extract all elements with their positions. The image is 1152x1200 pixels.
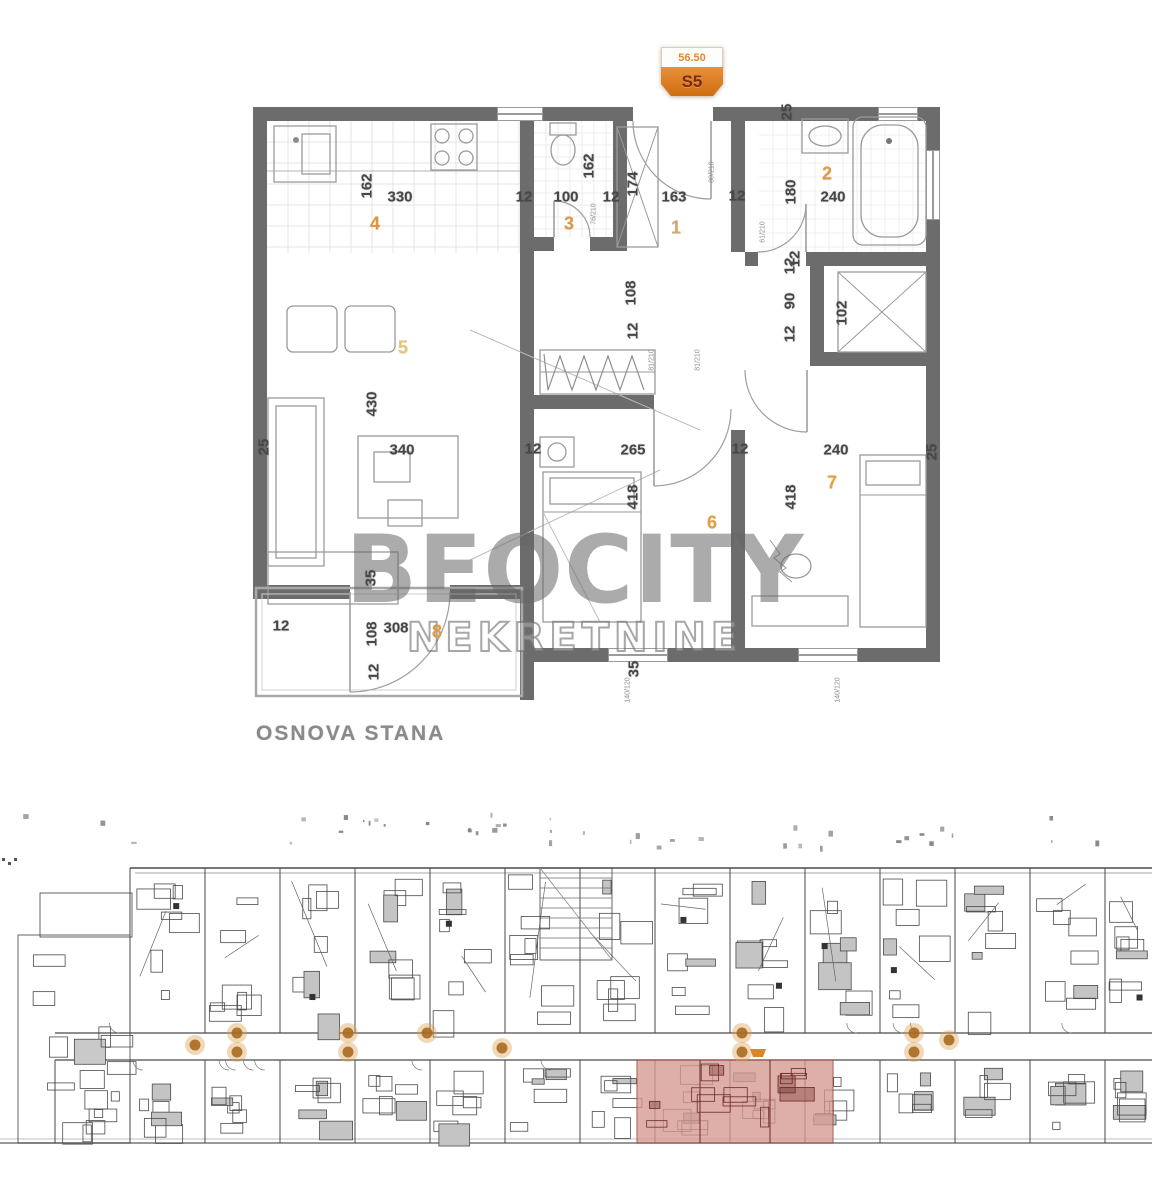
- corridor-marker-glow: [939, 1030, 959, 1050]
- building-room: [101, 1035, 133, 1047]
- dimension-tick: [384, 824, 386, 827]
- building-room: [63, 1123, 93, 1144]
- door-swing-arc: [133, 1060, 143, 1070]
- building-room: [1115, 1082, 1126, 1097]
- corridor-marker-dot: [737, 1028, 748, 1039]
- door-swing-arc: [255, 1060, 265, 1070]
- highlight-room: [778, 1076, 795, 1093]
- building-room: [318, 1083, 340, 1102]
- highlight-room: [649, 1101, 660, 1108]
- unit-id-label: S5: [661, 67, 723, 96]
- building-room: [540, 868, 612, 960]
- unit-area-label: 56.50: [661, 47, 723, 68]
- screenshot-root: 56.50 S5 1623301210012162174163122518024…: [0, 0, 1152, 1200]
- building-room: [840, 938, 856, 951]
- building-room: [534, 1089, 567, 1102]
- dimension-label: 163: [661, 189, 686, 206]
- building-room: [33, 992, 55, 1006]
- dimension-tick: [828, 831, 833, 837]
- building-room: [1054, 910, 1071, 924]
- door-swing-arc: [243, 1060, 253, 1070]
- building-room: [605, 1081, 617, 1091]
- building-room: [316, 891, 338, 908]
- dimension-tick: [952, 833, 954, 837]
- building-room: [304, 971, 320, 997]
- highlight-room: [780, 1087, 814, 1101]
- building-room: [608, 989, 617, 1011]
- highlight-room: [723, 1097, 756, 1106]
- building-room: [1055, 1083, 1085, 1105]
- building-room: [883, 879, 902, 905]
- building-room: [1069, 918, 1097, 936]
- building-line: [540, 868, 612, 960]
- corridor-marker-glow: [732, 1042, 752, 1062]
- door-swing-arc: [219, 1060, 229, 1070]
- building-room: [161, 912, 181, 919]
- building-room: [446, 889, 461, 915]
- wardrobe-hangers: [544, 354, 644, 390]
- building-room: [453, 1097, 477, 1115]
- window-glass-line: [799, 654, 857, 656]
- building-room: [94, 1110, 102, 1118]
- armchair-icon: [287, 306, 337, 352]
- door-size-annotation: 81/210: [695, 349, 702, 370]
- building-room: [663, 1109, 691, 1131]
- window-glass-line: [932, 151, 934, 219]
- room-number: 5: [398, 338, 408, 359]
- corridor-marker-dot: [232, 1028, 243, 1039]
- building-room: [463, 1097, 481, 1107]
- sight-line: [470, 330, 700, 430]
- shaft-fill: [1137, 994, 1143, 1000]
- building-room: [601, 1076, 631, 1093]
- building-room: [965, 1100, 991, 1109]
- wall: [534, 395, 654, 409]
- building-line: [368, 904, 396, 971]
- toilet-tank-icon: [550, 123, 576, 135]
- dimension-label: 25: [924, 444, 941, 461]
- building-room: [363, 1099, 395, 1113]
- building-room: [756, 961, 787, 968]
- door-swing-arc: [893, 1023, 903, 1033]
- bed: [860, 455, 926, 627]
- building-room: [823, 943, 847, 966]
- corridor-marker-dot: [343, 1047, 354, 1058]
- building-room: [1067, 998, 1096, 1009]
- dimension-tick: [1049, 816, 1053, 821]
- building-line: [899, 947, 935, 980]
- dimension-label: 418: [783, 484, 800, 509]
- building-room: [532, 1079, 544, 1084]
- dimension-label: 12: [732, 441, 749, 458]
- building-room: [819, 963, 852, 990]
- corridor-marker-dot: [190, 1040, 201, 1051]
- kitchen-sink: [274, 126, 336, 182]
- building-room: [154, 884, 175, 898]
- terrace-parapet: [256, 588, 522, 696]
- plan-title: OSNOVA STANA: [256, 722, 445, 746]
- building-room: [433, 1011, 454, 1037]
- building-room: [238, 992, 247, 1010]
- window-glass-line: [609, 654, 667, 656]
- dimension-tick: [670, 839, 675, 842]
- dimension-label: 240: [820, 189, 845, 206]
- window-glass-line: [498, 113, 542, 115]
- building-room: [389, 960, 413, 978]
- building-room: [80, 1071, 104, 1089]
- wall: [253, 107, 267, 599]
- building-room: [1110, 902, 1133, 923]
- dimension-label: 12: [273, 618, 290, 635]
- building-line: [758, 918, 783, 971]
- building-room: [760, 940, 777, 947]
- highlight-room: [780, 1073, 792, 1083]
- door-size-annotation: 80/210: [709, 161, 716, 182]
- apartment-plan-fixtures: [0, 0, 1152, 790]
- dimension-label: 12: [787, 251, 804, 268]
- dimension-tick: [468, 829, 472, 832]
- building-room: [896, 909, 919, 925]
- building-line: [225, 935, 259, 957]
- building-room: [153, 1101, 169, 1115]
- building-room: [48, 1083, 75, 1090]
- building-room: [510, 935, 538, 959]
- door-swing-arc: [633, 121, 711, 199]
- corridor-marker-dot: [497, 1043, 508, 1054]
- building-room: [309, 885, 327, 911]
- wall: [810, 352, 926, 366]
- dimension-tick: [657, 846, 662, 850]
- building-room: [107, 1062, 136, 1075]
- sofa: [268, 552, 398, 604]
- building-room: [137, 889, 171, 909]
- door-swing-arc: [541, 1060, 551, 1070]
- building-room: [679, 898, 708, 923]
- door-size-annotation: 140/120: [835, 677, 842, 702]
- wall: [713, 107, 940, 121]
- stove-icon: [431, 124, 477, 170]
- building-room: [1110, 979, 1122, 1002]
- building-room: [613, 1078, 637, 1083]
- building-room: [370, 951, 396, 963]
- dimension-tick: [793, 825, 797, 830]
- room-number: 4: [370, 214, 380, 235]
- dimension-label: 25: [256, 439, 273, 456]
- building-room: [18, 935, 130, 1143]
- building-room: [1121, 939, 1144, 951]
- window: [497, 107, 543, 121]
- building-room: [1045, 982, 1065, 1002]
- dimension-label: 12: [625, 323, 642, 340]
- building-room: [814, 1115, 836, 1125]
- wall: [520, 585, 534, 700]
- window: [608, 648, 668, 662]
- window-glass-line: [879, 113, 917, 115]
- building-room: [968, 1012, 991, 1034]
- building-room: [443, 883, 461, 893]
- building-room: [221, 1123, 243, 1133]
- building-room: [210, 1003, 224, 1011]
- dimension-tick: [1051, 840, 1053, 843]
- door-swing-arc: [412, 1060, 422, 1070]
- shaft-fill: [309, 994, 315, 1000]
- building-room: [83, 1125, 91, 1142]
- building-room: [1113, 1105, 1146, 1119]
- building-room: [33, 955, 65, 966]
- corridor-marker-glow: [338, 1023, 358, 1043]
- building-room: [684, 1113, 699, 1123]
- building-room: [74, 1039, 105, 1064]
- building-room: [1121, 1071, 1143, 1092]
- building-room: [615, 1118, 631, 1139]
- building-room: [49, 1037, 67, 1057]
- dimension-tick: [2, 858, 5, 861]
- window: [798, 648, 858, 662]
- dimension-tick: [8, 862, 11, 865]
- building-room: [899, 1094, 913, 1113]
- building-room: [511, 955, 534, 965]
- corridor-marker-glow: [904, 1042, 924, 1062]
- dimension-tick: [468, 828, 470, 832]
- building-room: [1048, 1082, 1075, 1096]
- building-room: [152, 1084, 170, 1100]
- building-room: [1068, 1075, 1084, 1084]
- room-number: 6: [707, 513, 717, 534]
- building-room: [40, 893, 132, 937]
- building-room: [439, 1124, 470, 1146]
- building-line: [968, 903, 998, 941]
- building-line: [140, 911, 166, 976]
- building-room: [815, 1113, 831, 1124]
- building-room: [734, 1073, 756, 1082]
- building-room: [396, 1101, 426, 1120]
- dimension-label: 12: [782, 326, 799, 343]
- building-room: [152, 1112, 182, 1126]
- dimension-tick: [896, 840, 901, 843]
- door-size-annotation: 61/210: [760, 221, 767, 242]
- shaft-fill: [680, 917, 686, 923]
- building-room: [965, 894, 985, 911]
- building-room: [99, 1027, 111, 1047]
- wall: [810, 266, 824, 352]
- terrace-parapet: [262, 594, 516, 690]
- wall: [926, 107, 940, 662]
- wall: [520, 121, 534, 251]
- building-line: [661, 904, 706, 909]
- highlight-room: [761, 1107, 769, 1127]
- wall: [745, 252, 758, 266]
- chair: [781, 554, 811, 578]
- building-room: [1120, 1099, 1145, 1122]
- building-room: [173, 886, 182, 899]
- dimension-label: 100: [553, 189, 578, 206]
- building-room: [680, 1066, 712, 1085]
- armchair-icon: [345, 306, 395, 352]
- unit-badge: 56.50 S5: [659, 47, 723, 97]
- building-room: [604, 1004, 636, 1021]
- toilet-icon: [551, 135, 575, 165]
- dimension-label: 240: [823, 442, 848, 459]
- dimension-tick: [363, 820, 365, 822]
- building-room: [140, 1099, 149, 1111]
- room-number: 7: [827, 473, 837, 494]
- dimension-label: 90: [782, 293, 799, 310]
- building-room: [212, 1098, 233, 1105]
- building-room: [525, 939, 536, 954]
- sink-faucet-icon: [293, 137, 299, 143]
- building-room: [764, 1100, 775, 1123]
- shaft-cross: [617, 127, 658, 247]
- building-room: [449, 982, 463, 995]
- building-room: [846, 991, 872, 1015]
- dimension-tick: [940, 827, 944, 832]
- building-room: [161, 991, 169, 1000]
- dimension-label: 265: [620, 442, 645, 459]
- building-room: [237, 898, 258, 905]
- highlight-room: [692, 1088, 715, 1102]
- building-room: [209, 1006, 241, 1022]
- building-room: [230, 1096, 242, 1111]
- dimension-tick: [23, 814, 28, 819]
- closet-cross: [838, 272, 926, 352]
- building-room: [682, 1121, 708, 1135]
- building-room: [437, 1091, 464, 1105]
- room-number: 1: [671, 218, 681, 239]
- building-room: [380, 1096, 393, 1114]
- unit-entry-marker: [750, 1049, 766, 1057]
- dimension-tick: [550, 818, 552, 821]
- dimension-tick: [1095, 840, 1099, 846]
- building-room: [678, 1121, 708, 1130]
- building-room: [233, 1110, 247, 1123]
- dimension-label: 12: [782, 258, 799, 275]
- corridor-marker-dot: [909, 1047, 920, 1058]
- wall: [253, 107, 633, 121]
- building-room: [603, 880, 611, 894]
- dimension-label: 162: [581, 153, 598, 178]
- building-room: [753, 1110, 764, 1118]
- building-room: [754, 1099, 775, 1109]
- dimension-tick: [290, 842, 292, 845]
- dimension-tick: [374, 818, 378, 821]
- building-room: [314, 937, 327, 953]
- building-room: [920, 1073, 930, 1086]
- building-room: [985, 1083, 1011, 1099]
- bed-pillow: [866, 461, 920, 485]
- dimension-tick: [426, 822, 430, 825]
- building-room: [672, 987, 685, 995]
- building-room: [85, 1091, 108, 1109]
- building-room: [508, 875, 532, 889]
- highlighted-apartment: [637, 1060, 833, 1143]
- building-room: [919, 936, 950, 961]
- building-room: [693, 884, 722, 896]
- building-room: [313, 1078, 331, 1098]
- door-swing-arc: [554, 201, 590, 237]
- building-room: [151, 950, 163, 972]
- building-room: [683, 888, 716, 894]
- building-room: [454, 1071, 483, 1094]
- wall: [520, 251, 534, 648]
- building-room: [840, 1002, 869, 1014]
- corridor-marker-dot: [737, 1047, 748, 1058]
- window: [878, 107, 918, 121]
- stove-burner-icon: [435, 151, 449, 165]
- building-room: [1053, 1122, 1060, 1129]
- building-room: [237, 995, 261, 1015]
- building-line: [530, 882, 546, 998]
- corridor-marker-dot: [944, 1035, 955, 1046]
- building-room: [974, 886, 1003, 894]
- watermark-line1: BEOCITY: [338, 524, 812, 618]
- building-room: [318, 1014, 339, 1040]
- highlight-room: [782, 1073, 807, 1079]
- building-room: [1071, 951, 1098, 964]
- dimension-tick: [476, 831, 479, 835]
- building-room: [1115, 927, 1138, 948]
- dimension-tick: [369, 821, 371, 826]
- corridor-marker-glow: [417, 1023, 437, 1043]
- building-room: [967, 907, 996, 912]
- building-room: [1116, 951, 1147, 959]
- building-room: [984, 1068, 1002, 1079]
- building-room: [86, 1121, 105, 1134]
- building-room: [810, 911, 841, 934]
- dimension-label: 108: [364, 621, 381, 646]
- door-size-annotation: 81/210: [649, 349, 656, 370]
- room-number: 2: [822, 164, 832, 185]
- dimension-label: 12: [516, 189, 533, 206]
- corridor-marker-dot: [232, 1047, 243, 1058]
- door-swing-arc: [1062, 1023, 1072, 1033]
- shaft: [617, 127, 658, 247]
- building-room: [1109, 982, 1141, 990]
- building-room: [440, 919, 450, 931]
- sight-line: [470, 470, 660, 560]
- building-room: [753, 1092, 760, 1101]
- building-room: [1114, 1078, 1137, 1089]
- door-swing-arc: [758, 204, 806, 252]
- washing-machine-icon: [540, 437, 574, 467]
- building-room: [212, 1087, 226, 1104]
- dimension-tick: [798, 844, 802, 849]
- building-room: [893, 1005, 919, 1018]
- building-room: [748, 985, 773, 999]
- corridor-marker-glow: [338, 1042, 358, 1062]
- building-room: [316, 1081, 327, 1095]
- dimension-label: 25: [779, 104, 796, 121]
- building-room: [668, 954, 688, 971]
- coffee-table: [374, 452, 410, 482]
- building-room: [384, 891, 406, 906]
- building-room: [980, 1075, 987, 1097]
- building-room: [986, 933, 1016, 948]
- door-swing-arc: [745, 370, 807, 432]
- building-room: [376, 1077, 392, 1092]
- building-room: [883, 939, 896, 955]
- dimension-tick: [549, 840, 552, 846]
- corridor-marker-glow: [904, 1023, 924, 1043]
- highlight-room: [710, 1066, 724, 1076]
- corridor-marker-dot: [343, 1028, 354, 1039]
- building-room: [510, 1123, 527, 1132]
- building-line: [462, 956, 486, 992]
- dimension-tick: [100, 821, 105, 826]
- window: [926, 150, 940, 220]
- building-room: [829, 1101, 846, 1120]
- building-room: [1117, 1093, 1146, 1115]
- building-room: [675, 1006, 709, 1014]
